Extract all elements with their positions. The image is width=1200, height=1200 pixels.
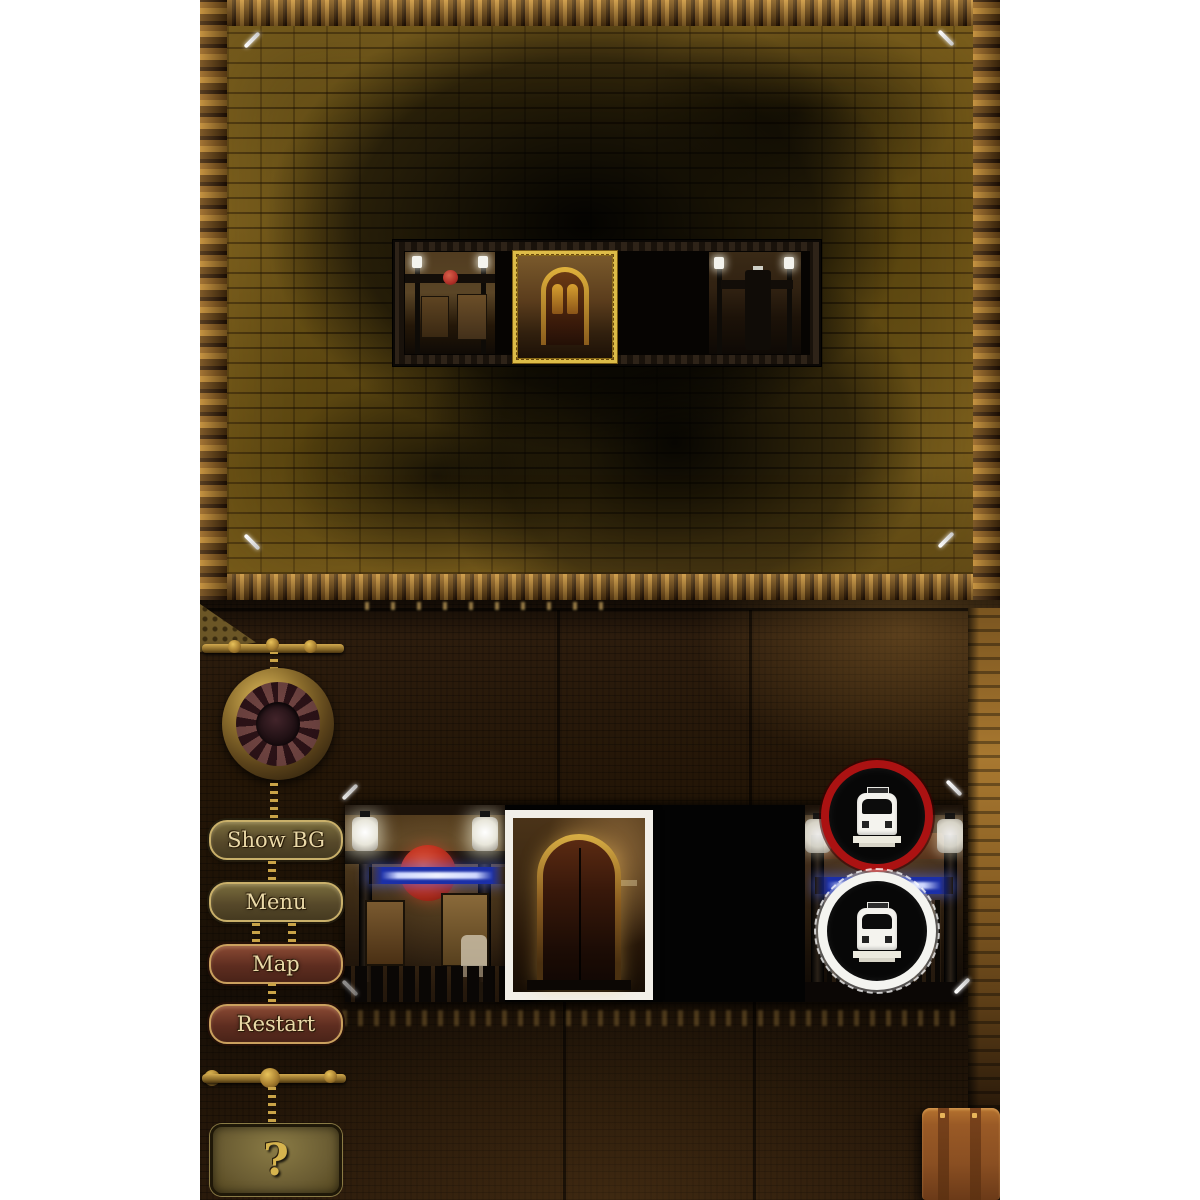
suitcase (922, 1108, 1000, 1200)
menu-button[interactable]: Menu (209, 882, 343, 922)
sign-beam (721, 280, 747, 289)
minimap-station-gate-cell (709, 252, 801, 354)
chain (252, 920, 260, 942)
lamp-icon (784, 257, 794, 269)
lit-wall-edge (968, 608, 1000, 1108)
gate-icon (745, 270, 771, 350)
window (421, 296, 449, 338)
wood-frame-left (200, 0, 227, 600)
door-icon (541, 267, 589, 345)
railing (345, 966, 505, 1002)
brass-medallion (222, 668, 334, 780)
chain (288, 920, 296, 942)
help-button[interactable]: ? (210, 1124, 342, 1196)
suitcase-strap (970, 1108, 981, 1200)
lamppost-icon (944, 835, 957, 1002)
minimap-track (404, 251, 810, 355)
wall-seam (563, 1002, 566, 1200)
train-destination-badge-white[interactable] (818, 872, 936, 990)
train-icon (853, 785, 901, 847)
suitcase-strap (938, 1108, 949, 1200)
lamp-icon (472, 817, 498, 851)
wood-frame-top (200, 0, 1000, 26)
brass-knob (266, 638, 279, 651)
chain (268, 858, 276, 880)
window (457, 294, 487, 340)
show-bg-button[interactable]: Show BG (209, 820, 343, 860)
door-panel (552, 284, 563, 314)
chain (268, 1086, 276, 1122)
door-step (527, 980, 631, 990)
restart-button[interactable]: Restart (209, 1004, 343, 1044)
wall-seam (557, 610, 560, 805)
train-destination-badge-red[interactable] (821, 760, 933, 872)
lamppost-icon (787, 262, 792, 354)
lamp-icon (937, 819, 963, 853)
wood-frame-right (973, 0, 1000, 600)
arched-door-icon (537, 834, 621, 986)
help-button-label: ? (263, 1135, 289, 1186)
bottom-touch-screen: Show BG Menu Map Restart ? (200, 600, 1000, 1200)
suitcase-latch (940, 1113, 945, 1118)
brass-knob (228, 640, 241, 653)
wall-seam (753, 1002, 756, 1200)
menu-button-label: Menu (246, 890, 307, 914)
chain (270, 782, 278, 818)
lamp-icon (478, 256, 488, 268)
window (365, 900, 405, 966)
minimap-current-room-cell (513, 251, 617, 363)
door-leaf (546, 272, 584, 345)
chain (268, 982, 276, 1002)
current-room-door-card[interactable] (505, 810, 653, 1000)
lamp-icon (352, 817, 378, 851)
restart-button-label: Restart (237, 1012, 315, 1036)
minimap-station-entrance-cell (405, 252, 495, 354)
door-room-scene (513, 818, 645, 992)
lamp-icon (412, 256, 422, 268)
top-screen (200, 0, 1000, 600)
map-button[interactable]: Map (209, 944, 343, 984)
map-button-label: Map (252, 952, 299, 976)
lamppost-icon (717, 262, 722, 354)
lamp-icon (714, 257, 724, 269)
illuminated-station-sign (369, 867, 505, 884)
door-leaf (543, 840, 615, 986)
game-screenshot: Show BG Menu Map Restart ? (0, 0, 1200, 1200)
brass-knob (304, 640, 317, 653)
suitcase-latch (972, 1113, 977, 1118)
room-strip-minimap (393, 240, 821, 366)
show-bg-button-label: Show BG (227, 828, 325, 852)
brass-knob (260, 1068, 280, 1088)
wood-frame-bottom (200, 574, 1000, 600)
station-entrance-room-piece[interactable] (345, 805, 505, 1002)
wall-seam (749, 610, 752, 805)
underground-roundel-icon (443, 270, 458, 285)
sidebar: Show BG Menu Map Restart ? (200, 600, 350, 1200)
train-icon (853, 900, 901, 962)
gold-glint (365, 602, 615, 610)
door-panel (567, 284, 578, 314)
medallion-core (256, 702, 300, 746)
brass-knob (324, 1070, 337, 1083)
